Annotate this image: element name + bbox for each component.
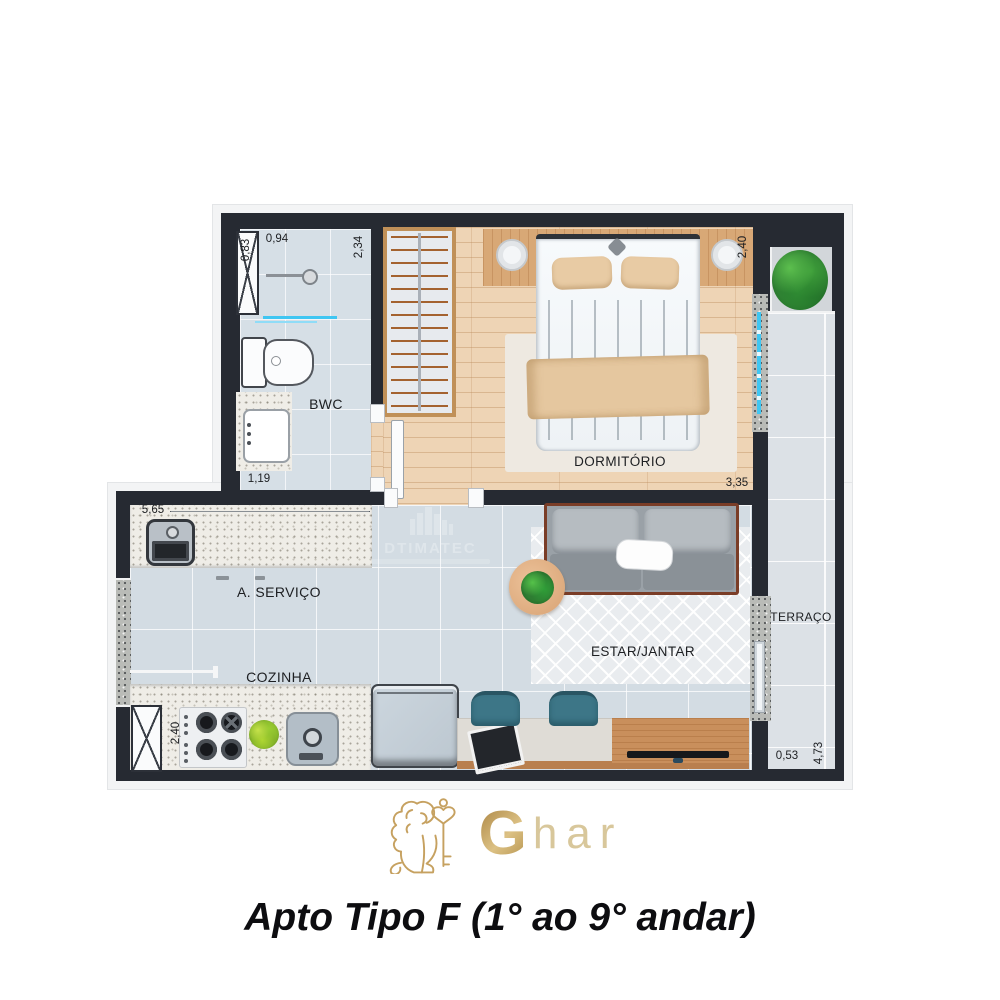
label-terraco: TERRAÇO <box>766 610 836 624</box>
bedroom-window-glass <box>757 312 761 414</box>
dim-servico-length: 5,65 <box>134 504 172 516</box>
pillow-right <box>620 256 679 290</box>
bed-throw-blanket <box>526 355 710 420</box>
dim-bwc-width: 0,83 <box>240 233 254 267</box>
terrace-glass-door <box>754 641 765 713</box>
label-dormitorio: DORMITÓRIO <box>550 454 690 469</box>
burner-tr <box>221 712 242 733</box>
fridge-door-line <box>377 692 453 694</box>
dim-dorm-width: 2,40 <box>737 230 751 264</box>
dim-cozinha-width: 2,40 <box>170 716 184 750</box>
logo-text-har: har <box>533 812 624 856</box>
lion-key-icon <box>377 794 473 874</box>
dim-terraco-width: 0,53 <box>768 750 806 762</box>
dim-shower-width: 0,94 <box>258 233 296 245</box>
watermark-text: DTIMATEC <box>358 540 503 557</box>
laundry-tank-basin <box>152 541 189 561</box>
side-table-plant <box>521 571 554 604</box>
dim-terraco-length: 4,73 <box>813 736 827 770</box>
fruit-bowl <box>249 720 279 749</box>
burner-tl <box>196 712 217 733</box>
service-window <box>116 578 131 707</box>
dim-line-servico <box>170 511 370 512</box>
stove-knobs <box>184 715 188 719</box>
tv-stand-foot <box>673 758 683 763</box>
logo-letter-g: G <box>479 803 527 865</box>
kitchen-faucet-base <box>299 753 323 760</box>
fridge <box>371 684 459 768</box>
label-cozinha: COZINHA <box>219 669 339 685</box>
laundry-faucet <box>166 526 179 539</box>
watermark-building-icon <box>404 505 458 535</box>
toilet-flush <box>271 356 281 366</box>
kitchen-faucet <box>303 728 322 747</box>
pillow-left <box>551 256 612 290</box>
shower-head <box>302 269 318 285</box>
shower-glass-panel2 <box>255 321 317 323</box>
dim-vanity: 1,19 <box>240 473 278 485</box>
dim-bwc-depth: 2,34 <box>353 230 367 264</box>
burner-br <box>221 739 242 760</box>
terrace-floor <box>768 311 835 769</box>
sofa-white-pillow <box>615 539 673 572</box>
developer-watermark: DTIMATEC <box>358 505 503 564</box>
corridor-opening <box>397 488 468 505</box>
shower-glass-panel <box>263 316 337 319</box>
kitchen-halfwall-cap <box>213 666 218 678</box>
desk-chair-2 <box>549 691 598 726</box>
label-bwc: BWC <box>296 396 356 412</box>
watermark-subline <box>370 559 490 564</box>
page-title: Apto Tipo F (1° ao 9° andar) <box>0 896 1000 940</box>
duct-shaft-bottom <box>131 705 162 772</box>
door-jamb-bwc-top <box>370 404 385 423</box>
bwc-door-opening <box>371 421 383 477</box>
bwc-faucet <box>247 423 251 427</box>
washer-outlet-2 <box>255 576 265 580</box>
label-estar: ESTAR/JANTAR <box>563 644 723 659</box>
tv <box>627 751 729 758</box>
kitchen-halfwall <box>130 670 216 673</box>
dim-dorm-length: 3,35 <box>718 477 756 489</box>
terrace-plant <box>772 250 828 310</box>
desk-chair-1 <box>471 691 520 726</box>
brand-logo: G har <box>0 792 1000 876</box>
burner-bl <box>196 739 217 760</box>
door-jamb-bwc-bottom <box>370 477 385 492</box>
floorplan-image: DTIMATEC BWC DORMITÓRIO A. SERVIÇO COZIN… <box>0 0 1000 1000</box>
label-servico: A. SERVIÇO <box>219 584 339 600</box>
bwc-sink <box>243 409 290 463</box>
lamp-left <box>496 239 528 271</box>
washer-outlet-1 <box>216 576 229 580</box>
closet-rail <box>418 233 421 411</box>
